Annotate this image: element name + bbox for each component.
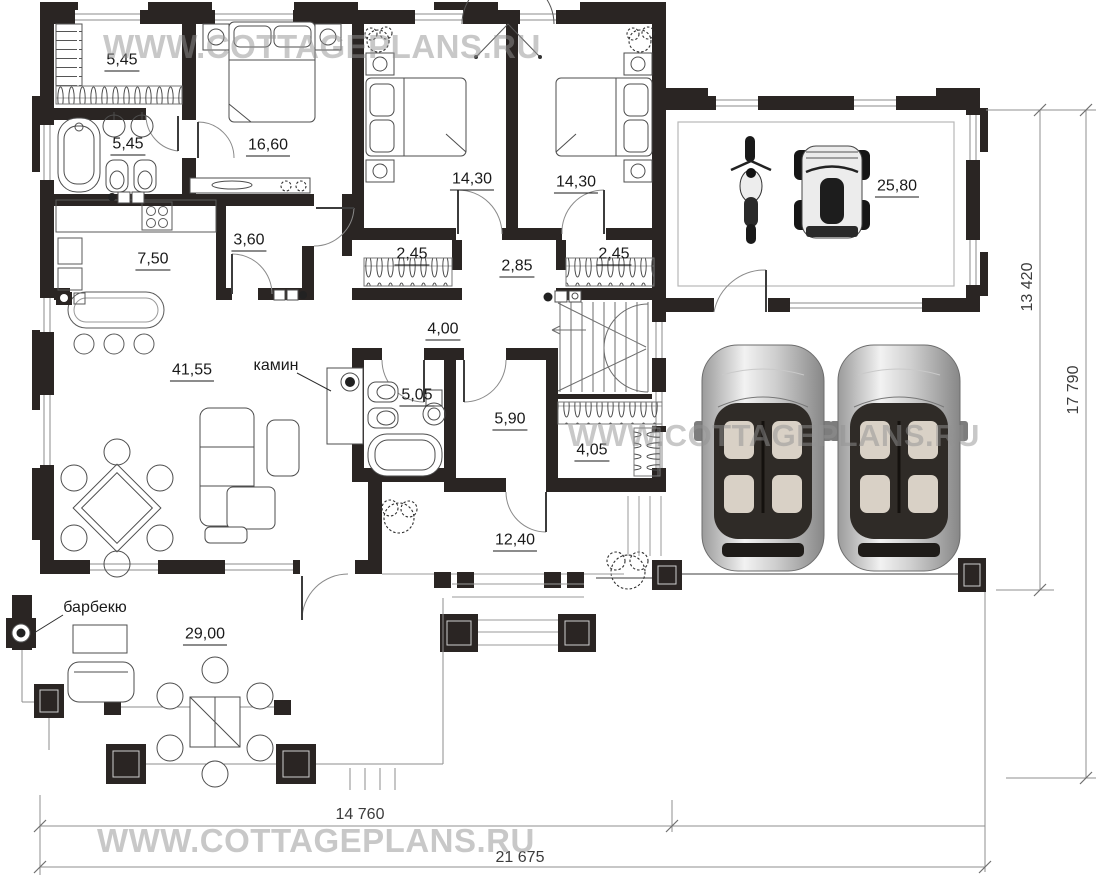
staircase bbox=[552, 302, 648, 392]
floor-plan-page: 5,45 5,45 16,60 14,30 14,30 25,80 3,60 7… bbox=[0, 0, 1099, 888]
area-label-living-room: 41,55 bbox=[170, 363, 214, 382]
area-label-bedroom-2: 14,30 bbox=[450, 172, 494, 191]
car-1 bbox=[694, 345, 832, 571]
area-label-bathroom-top: 5,45 bbox=[110, 137, 145, 156]
area-label-pantry: 3,60 bbox=[231, 233, 266, 252]
area-label-kitchen: 7,50 bbox=[135, 252, 170, 271]
area-label-laundry: 5,90 bbox=[492, 412, 527, 431]
atv-quad bbox=[794, 146, 870, 238]
dimension-bottom-house: 14 760 bbox=[336, 807, 385, 823]
area-label-terrace-entry: 12,40 bbox=[493, 533, 537, 552]
barbecue-label: барбекю bbox=[63, 600, 126, 616]
watermark-middle: WWW.COTTAGEPLANS.RU bbox=[568, 420, 980, 451]
dimension-side-total: 17 790 bbox=[1066, 366, 1082, 415]
car-2 bbox=[830, 345, 968, 571]
watermark-top: WWW.COTTAGEPLANS.RU bbox=[103, 30, 541, 63]
area-label-bedroom-master: 16,60 bbox=[246, 138, 290, 157]
area-label-wardrobe-left: 2,45 bbox=[394, 247, 429, 266]
dimension-side-garage: 13 420 bbox=[1020, 263, 1036, 312]
living-room-furniture bbox=[61, 368, 363, 577]
area-label-terrace-barbecue: 29,00 bbox=[183, 627, 227, 646]
fireplace-label: камин bbox=[253, 358, 298, 374]
area-label-hallway: 4,00 bbox=[425, 322, 460, 341]
kitchen-fixtures bbox=[56, 200, 216, 354]
motorcycle bbox=[731, 136, 771, 244]
area-label-hall-bedrooms: 2,85 bbox=[499, 259, 534, 278]
watermark-bottom: WWW.COTTAGEPLANS.RU bbox=[97, 824, 535, 857]
area-label-garage: 25,80 bbox=[875, 179, 919, 198]
area-label-bedroom-3: 14,30 bbox=[554, 175, 598, 194]
area-label-wardrobe-right: 2,45 bbox=[596, 247, 631, 266]
area-label-bathroom-main: 5,05 bbox=[399, 388, 434, 407]
barbecue-terrace bbox=[6, 595, 443, 790]
